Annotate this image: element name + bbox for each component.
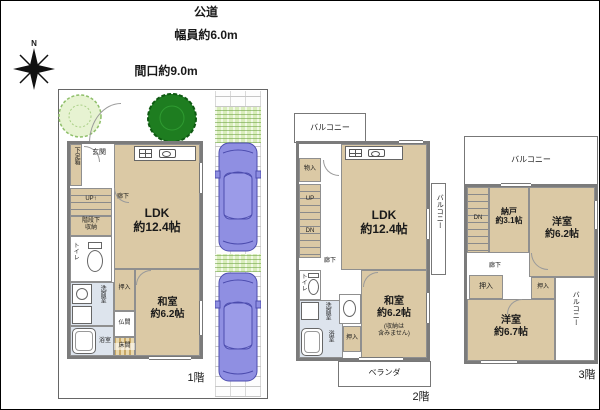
closet-3f-left-label: 押入 — [469, 283, 503, 291]
bathtub-icon-2f — [301, 328, 323, 356]
veranda-2f-label: ベランダ — [339, 368, 430, 377]
butsuma-1f: 仏間 — [114, 311, 135, 337]
floor-2-label: 2階 — [401, 391, 441, 404]
closet-2f: 押入 — [343, 326, 361, 352]
balcony-2f-topleft: バルコニー — [294, 113, 366, 143]
closet-3f-right: 押入 — [531, 277, 555, 299]
washbasin-bowl-icon-1f — [76, 288, 88, 300]
stove-icon — [139, 149, 152, 158]
room-1f-ldk-label: LDK 約12.4帖 — [114, 206, 200, 234]
parked-cars-icon — [215, 141, 261, 389]
closet-3f-left: 押入 — [469, 275, 503, 299]
nando-name: 納戸 — [501, 207, 517, 216]
toilet-2f-label: トイレ — [299, 273, 306, 291]
ldk-name: LDK — [145, 206, 170, 220]
nando-size: 約3.1帖 — [495, 216, 522, 225]
washroom-1f-label: 洗面室 — [98, 285, 105, 303]
room-2f-ldk — [341, 144, 427, 270]
window — [399, 140, 423, 144]
washer-icon-2f — [301, 302, 319, 320]
room-2f-ldk-label: LDK 約12.4帖 — [341, 208, 427, 236]
ldk-2f-size: 約12.4帖 — [360, 222, 407, 236]
window — [359, 357, 403, 361]
door-arc — [323, 160, 339, 176]
understair-storage-l1: 階段下 — [82, 218, 100, 224]
bath-2f-label: 浴室 — [326, 330, 333, 342]
window — [199, 163, 203, 193]
grass-patch-top — [215, 107, 261, 143]
balcony-3f-right: バルコニー — [555, 277, 595, 361]
house-3f: DN 納戸 約3.1帖 洋室 約6.2帖 廊下 押入 押入 洋室 約6.7帖 バ… — [464, 184, 598, 364]
toilet-bowl-icon — [308, 279, 319, 295]
room-3f-nando-label: 納戸 約3.1帖 — [489, 207, 529, 226]
ldk-2f-name: LDK — [372, 208, 397, 222]
washbasin-2f — [339, 294, 361, 324]
understair-storage-l2: 収納 — [85, 225, 97, 231]
room-1f-washitsu-label: 和室 約6.2帖 — [135, 297, 200, 321]
window — [426, 293, 430, 323]
yoshitsu2-name: 洋室 — [501, 315, 521, 326]
washitsu-2f-size: 約6.2帖 — [377, 308, 411, 319]
house-2f: LDK 約12.4帖 物入 UP DN 廊下 トイレ 洗面室 浴室 押入 和室 — [296, 141, 430, 361]
stairs-3f-dn-label: DN — [467, 215, 489, 222]
yoshitsu1-name: 洋室 — [552, 217, 572, 228]
washitsu-1f-name: 和室 — [158, 297, 178, 308]
kitchen-counter-2f — [345, 146, 403, 160]
yoshitsu1-size: 約6.2帖 — [545, 229, 579, 240]
frontage-label: 間口約9.0m — [121, 64, 211, 78]
sink-icon — [159, 149, 176, 158]
balcony-2f-right: バルコニー — [431, 183, 446, 275]
bath-1f-label: 浴室 — [96, 338, 114, 345]
window — [426, 209, 430, 239]
closet-1f: 押入 — [114, 269, 135, 311]
bathtub-icon-1f — [72, 328, 96, 354]
floor-1-label: 1階 — [176, 372, 216, 385]
balcony-2f-right-label: バルコニー — [435, 194, 443, 229]
toilet-bowl-icon — [87, 250, 103, 272]
understair-storage-label: 階段下 収納 — [70, 218, 112, 232]
compass-north-icon — [12, 47, 56, 91]
room-2f-washitsu-label: 和室 約6.2帖 — [361, 296, 427, 320]
closet-2f-label: 押入 — [343, 335, 361, 342]
butsuma-label: 仏間 — [114, 320, 135, 327]
road-label: 公道 — [181, 5, 231, 19]
window — [594, 201, 598, 229]
tokonoma-1f: 床間 — [114, 337, 135, 356]
stairs-2f-up-label: UP — [299, 196, 321, 203]
ldk-size: 約12.4帖 — [133, 220, 180, 234]
yoshitsu2-size: 約6.7帖 — [494, 327, 528, 338]
closet-1f-label: 押入 — [114, 285, 135, 292]
storage-2f: 物入 — [299, 158, 321, 182]
washer-icon-1f — [72, 306, 92, 324]
tokonoma-label: 床間 — [114, 343, 135, 350]
window — [481, 360, 517, 364]
shoe-cabinet-1f: 下足箱 — [70, 144, 82, 186]
shoe-cabinet-label: 下足箱 — [72, 147, 79, 165]
balcony-3f-top: バルコニー — [464, 136, 598, 186]
window — [501, 183, 531, 187]
washroom-2f-label: 洗面室 — [323, 302, 330, 320]
window — [149, 356, 191, 360]
floorplan-canvas: 公道 幅員約6.0m 間口約9.0m N — [0, 0, 600, 410]
kitchen-counter-1f — [134, 146, 196, 161]
washitsu-note-l2: 含みません) — [378, 331, 410, 337]
balcony-3f-top-label: バルコニー — [465, 155, 597, 164]
floor-3-label: 3階 — [569, 369, 600, 382]
veranda-2f: ベランダ — [338, 361, 431, 387]
stairs-1f-up-label: UP↑ — [70, 196, 112, 203]
washitsu-1f-size: 約6.2帖 — [151, 309, 185, 320]
balcony-2f-label: バルコニー — [295, 123, 365, 132]
road-width-label: 幅員約6.0m — [161, 28, 251, 42]
toilet-tank-icon — [88, 242, 102, 249]
room-2f-washitsu-note: (収納は 含みません) — [361, 324, 427, 338]
room-3f-yoshitsu2-label: 洋室 約6.7帖 — [467, 315, 555, 339]
balcony-3f-right-label: バルコニー — [571, 291, 579, 326]
hallway-3f-label: 廊下 — [483, 263, 507, 270]
room-3f-yoshitsu1-label: 洋室 約6.2帖 — [529, 217, 595, 241]
storage-2f-label: 物入 — [299, 166, 321, 173]
house-1f: LDK 約12.4帖 下足箱 玄関 UP↑ 階段下 収納 トイレ 洗面室 浴室 … — [67, 141, 203, 359]
window — [199, 301, 203, 335]
tree-icon — [145, 91, 199, 145]
hallway-2f-label: 廊下 — [319, 258, 341, 265]
closet-3f-right-label: 押入 — [531, 284, 555, 291]
stove-icon — [349, 149, 362, 157]
washitsu-note-l1: (収納は — [384, 324, 404, 330]
sink-icon — [368, 149, 385, 157]
washbasin-bowl-icon-2f — [343, 300, 356, 317]
washitsu-2f-name: 和室 — [384, 296, 404, 307]
toilet-tank-icon — [308, 273, 319, 278]
stairs-2f-dn-label: DN — [299, 228, 321, 235]
toilet-1f-label: トイレ — [71, 242, 78, 260]
